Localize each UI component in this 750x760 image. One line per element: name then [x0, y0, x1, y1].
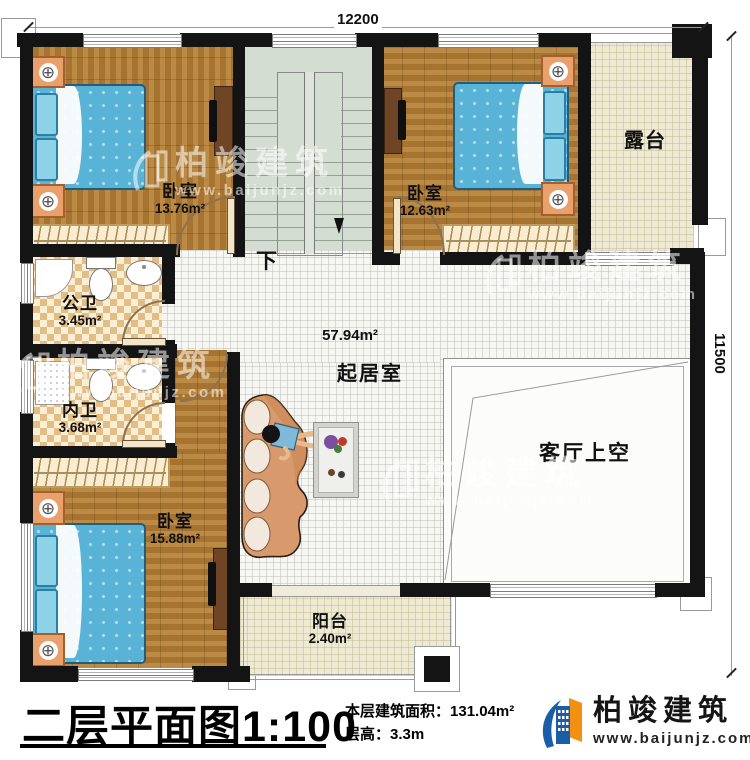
- dimension-line-right: [731, 36, 732, 676]
- bed-pillow: [35, 535, 58, 587]
- door-leaf: [122, 338, 166, 346]
- nightstand: ⊕: [31, 491, 65, 525]
- window: [272, 34, 357, 48]
- bed-sheet: [517, 84, 543, 184]
- nightstand: ⊕: [31, 184, 65, 218]
- wall: [20, 244, 180, 257]
- floor-plan-screenshot: ⊕ ⊕ ⊕ ⊕ ⊕ ⊕: [0, 0, 750, 760]
- decor-item: [338, 471, 345, 478]
- room-area: 3.45m²: [40, 313, 120, 328]
- bed-pillow: [543, 137, 566, 181]
- bed-pillow: [35, 93, 58, 136]
- lamp-icon: ⊕: [549, 190, 568, 209]
- room-label-bedroom1: 卧室 13.76m²: [135, 182, 225, 216]
- window: [21, 360, 34, 414]
- stair-flight-left: [245, 86, 277, 254]
- wall: [692, 45, 708, 225]
- room-name: 起居室: [310, 363, 430, 385]
- wall: [162, 358, 175, 403]
- dimension-value-top: 12200: [334, 11, 382, 28]
- lamp-icon: ⊕: [549, 62, 568, 81]
- floor-area-label: 本层建筑面积：: [345, 703, 450, 720]
- down-text: 下: [252, 250, 282, 274]
- terrace-parapet: [586, 33, 676, 43]
- stair-down-label: 下: [252, 250, 282, 274]
- room-label-bedroom2: 卧室 12.63m²: [380, 184, 470, 218]
- window: [78, 669, 194, 681]
- wall: [440, 252, 590, 265]
- wall: [20, 33, 33, 263]
- room-label-public-bathroom: 公卫 3.45m²: [40, 294, 120, 328]
- flower-decor: [334, 445, 342, 453]
- room-name: 卧室: [380, 184, 470, 203]
- wall: [20, 344, 177, 358]
- brand-website: www.baijunjz.com: [593, 731, 750, 746]
- room-name: 阳台: [285, 612, 375, 631]
- decor-item: [328, 469, 335, 476]
- room-area: 12.63m²: [380, 203, 470, 218]
- lamp-icon: ⊕: [39, 641, 58, 660]
- tv-icon: [208, 562, 216, 606]
- door-leaf: [227, 198, 235, 254]
- room-label-private-bathroom: 内卫 3.68m²: [40, 401, 120, 435]
- window: [490, 584, 657, 598]
- bed-pillow: [543, 91, 566, 135]
- room-label-living-room: 起居室: [310, 363, 430, 385]
- living-room-area-label: 57.94m²: [295, 328, 405, 345]
- room-label-living-void: 客厅上空: [510, 442, 660, 466]
- wall: [227, 583, 272, 597]
- wall: [180, 33, 272, 47]
- nightstand: ⊕: [31, 56, 65, 88]
- tv-icon: [209, 100, 217, 142]
- lamp-icon: ⊕: [39, 499, 58, 518]
- wall: [372, 33, 384, 257]
- floor-height-label: 层高：: [345, 726, 390, 743]
- room-label-bedroom3: 卧室 15.88m²: [130, 512, 220, 546]
- nightstand: ⊕: [31, 633, 65, 667]
- balcony-sliding-door: [272, 585, 400, 597]
- wardrobe-bedroom2: [442, 224, 575, 255]
- room-area: 13.76m²: [135, 201, 225, 216]
- window: [21, 263, 34, 304]
- wall: [20, 412, 33, 523]
- floor-height-value: 3.3m: [390, 726, 424, 743]
- brand-logo-icon: [535, 690, 585, 752]
- balcony-column: [424, 656, 450, 682]
- living-room-floor-top: [160, 250, 692, 363]
- brand-logo-block: 柏竣建筑 www.baijunjz.com: [535, 690, 750, 752]
- wall: [20, 666, 78, 682]
- brand-name: 柏竣建筑: [593, 697, 750, 726]
- stair-flight-right: [341, 86, 373, 254]
- nightstand: ⊕: [541, 55, 575, 87]
- toilet-bowl: [89, 369, 113, 402]
- room-name: 卧室: [130, 512, 220, 531]
- bed-bedroom2: [453, 82, 569, 190]
- window: [21, 523, 34, 632]
- wall: [578, 33, 591, 263]
- sink-icon: [126, 363, 162, 391]
- room-area: 57.94m²: [295, 328, 405, 345]
- lamp-icon: ⊕: [39, 192, 58, 211]
- wall: [227, 352, 240, 668]
- floor-area-value: 131.04m²: [450, 703, 514, 720]
- room-area: 3.68m²: [40, 420, 120, 435]
- wall: [162, 244, 175, 304]
- tv-icon: [398, 100, 406, 140]
- sink-icon: [126, 260, 162, 286]
- living-void-diagonal: [443, 358, 690, 588]
- nightstand: ⊕: [541, 182, 575, 216]
- floor-area-line: 本层建筑面积：131.04m²: [345, 700, 514, 723]
- room-area: 2.40m²: [285, 631, 375, 646]
- window: [438, 34, 539, 48]
- coffee-table: [313, 422, 359, 498]
- wall: [355, 33, 438, 47]
- plan-info: 本层建筑面积：131.04m² 层高：3.3m: [345, 700, 514, 747]
- room-label-balcony: 阳台 2.40m²: [285, 612, 375, 646]
- wall: [192, 666, 250, 682]
- shower-icon: [35, 361, 70, 405]
- room-name: 公卫: [40, 294, 120, 313]
- bed-sheet: [56, 86, 82, 184]
- wall: [690, 252, 705, 597]
- corner-column: [672, 24, 712, 58]
- wardrobe-bedroom3: [30, 456, 170, 488]
- room-name: 内卫: [40, 401, 120, 420]
- room-label-terrace: 露台: [600, 130, 690, 152]
- title-underline: [20, 744, 326, 748]
- lamp-icon: ⊕: [39, 63, 58, 82]
- stair-direction-arrow: [334, 218, 344, 234]
- stair-center-divider: [304, 72, 315, 254]
- floor-height-line: 层高：3.3m: [345, 723, 514, 746]
- room-name: 客厅上空: [510, 442, 660, 466]
- window: [83, 34, 182, 48]
- window: [585, 252, 674, 266]
- bed-pillow: [35, 138, 58, 181]
- door-leaf: [122, 440, 166, 448]
- wall: [400, 583, 490, 597]
- dimension-value-right: 11500: [711, 330, 728, 377]
- room-name: 卧室: [135, 182, 225, 201]
- room-name: 露台: [600, 130, 690, 152]
- room-area: 15.88m²: [130, 531, 220, 546]
- bed-bedroom1: [30, 84, 146, 190]
